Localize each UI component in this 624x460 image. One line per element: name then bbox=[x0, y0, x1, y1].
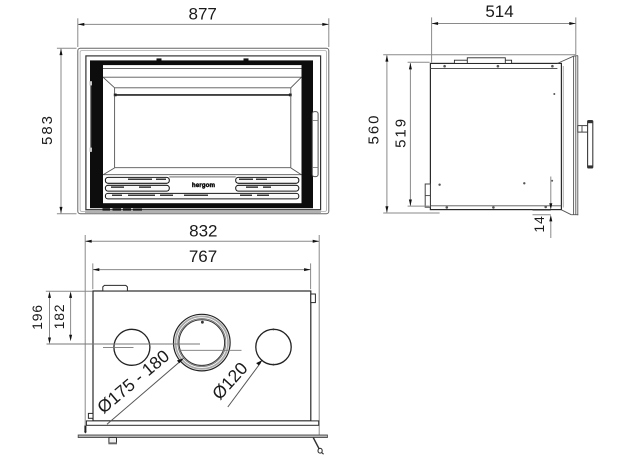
svg-text:767: 767 bbox=[189, 247, 217, 266]
svg-text:832: 832 bbox=[189, 221, 217, 240]
svg-text:hergom: hergom bbox=[192, 182, 216, 189]
svg-text:519: 519 bbox=[392, 117, 409, 148]
svg-text:182: 182 bbox=[51, 304, 67, 330]
svg-text:877: 877 bbox=[189, 4, 217, 23]
svg-text:514: 514 bbox=[485, 2, 513, 21]
svg-text:196: 196 bbox=[29, 304, 45, 330]
svg-text:560: 560 bbox=[365, 113, 382, 144]
svg-text:14: 14 bbox=[531, 215, 547, 232]
svg-text:583: 583 bbox=[39, 114, 56, 145]
